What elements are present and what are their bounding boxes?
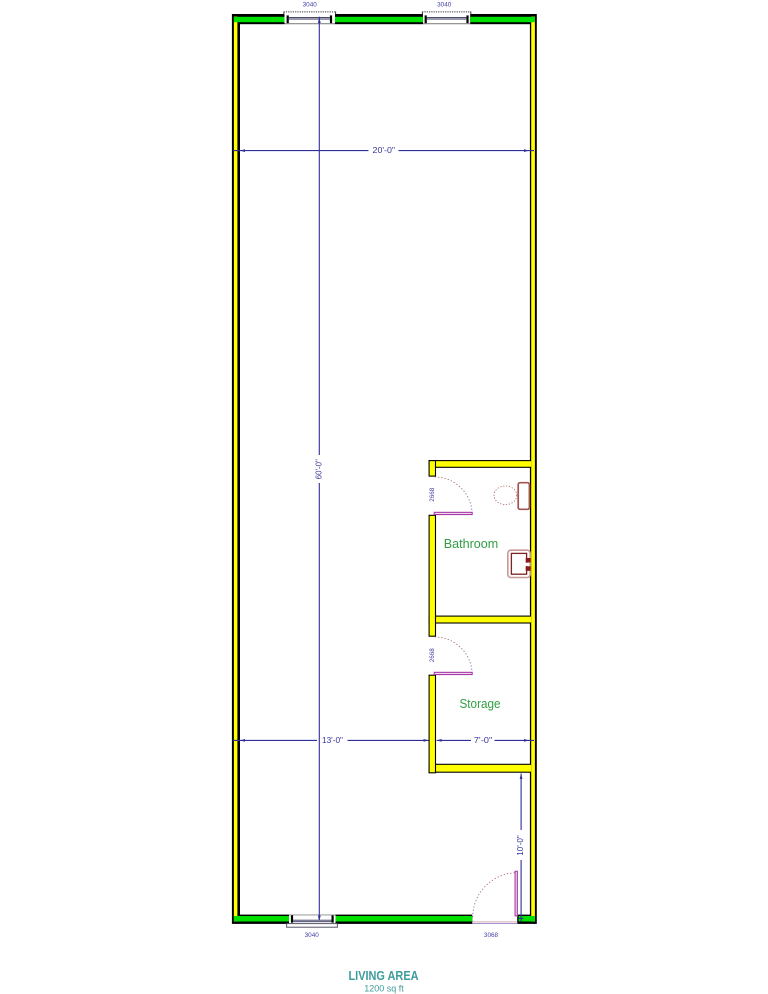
svg-text:2668: 2668 <box>429 488 436 502</box>
svg-text:Bathroom: Bathroom <box>444 536 499 551</box>
svg-text:Storage: Storage <box>460 696 501 711</box>
svg-text:LIVING AREA: LIVING AREA <box>349 969 419 983</box>
svg-text:3040: 3040 <box>305 932 319 939</box>
svg-text:13'-0": 13'-0" <box>322 736 343 745</box>
svg-text:1200 sq ft: 1200 sq ft <box>364 983 404 994</box>
svg-text:20'-0": 20'-0" <box>373 146 396 155</box>
svg-text:60'-0": 60'-0" <box>314 459 323 479</box>
svg-text:7'-0": 7'-0" <box>474 736 493 745</box>
svg-text:3040: 3040 <box>303 1 317 8</box>
svg-text:3068: 3068 <box>484 932 498 939</box>
svg-text:2668: 2668 <box>429 648 436 662</box>
svg-text:3040: 3040 <box>437 1 451 8</box>
svg-text:10'-0": 10'-0" <box>516 835 525 856</box>
